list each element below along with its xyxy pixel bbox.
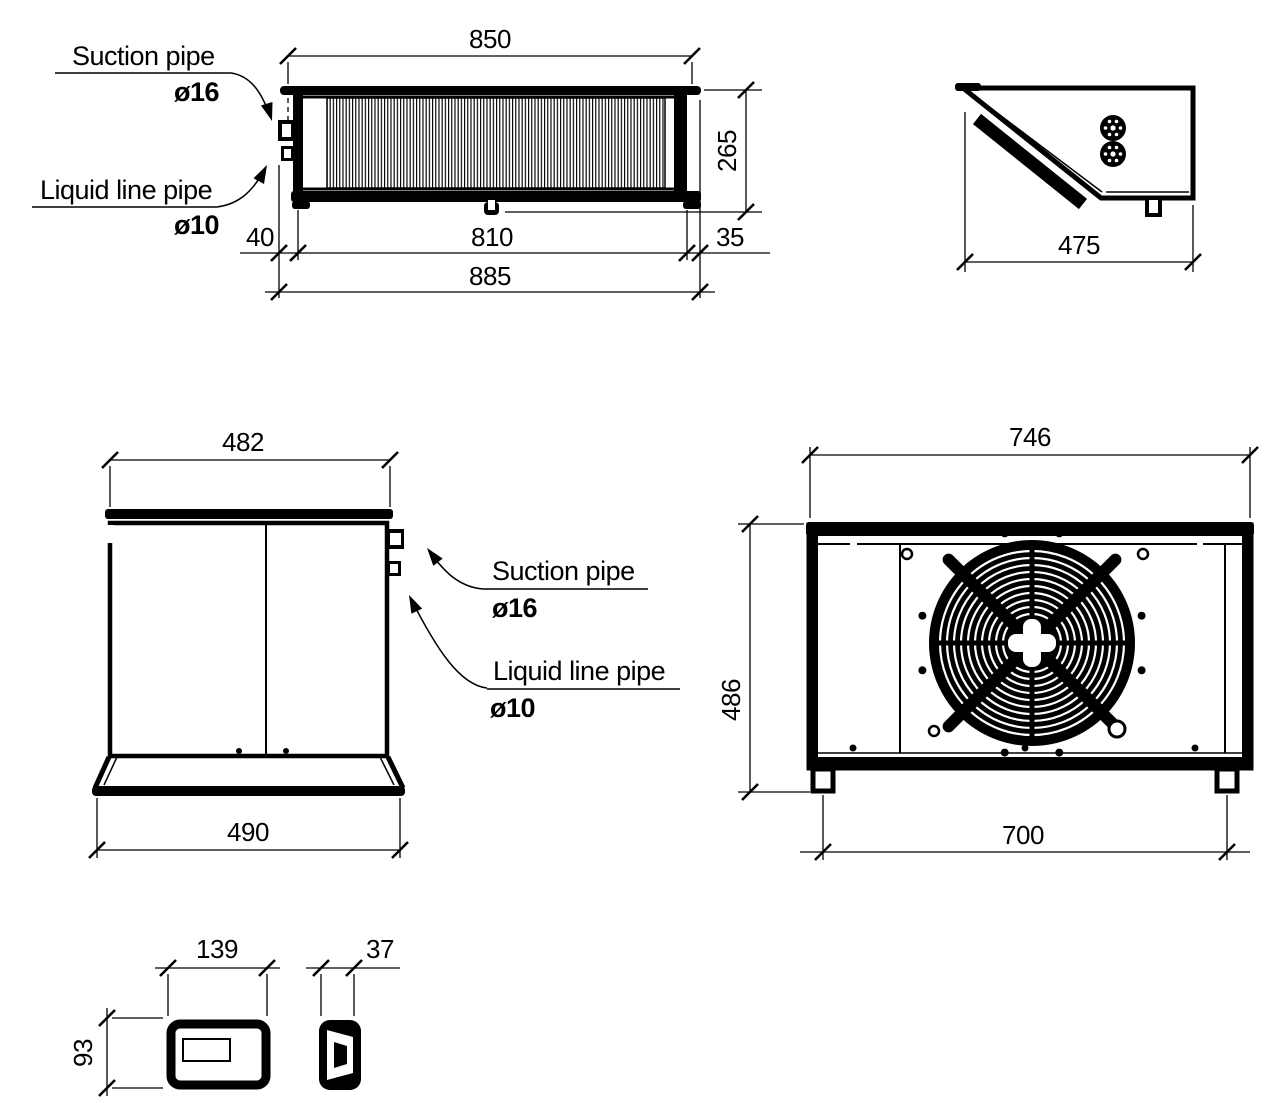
liquid-line-pipe-label: Liquid line pipe	[40, 175, 212, 205]
top-view-labels: Suction pipe ø16 Liquid line pipe ø10	[32, 41, 273, 240]
dim-490-label: 490	[227, 817, 269, 847]
technical-drawing-page: 850 265 40 810 35 885	[0, 0, 1280, 1120]
liquid-leader-line	[411, 599, 487, 688]
controller-display	[183, 1039, 230, 1061]
coil-fins	[327, 98, 665, 188]
fan-rear-view: 746	[716, 422, 1258, 860]
dim-40-label: 40	[246, 222, 274, 252]
dim-700-label: 700	[1002, 820, 1044, 850]
suction-leader-line	[231, 73, 270, 117]
condensing-unit-drawing: 850 265 40 810 35 885	[0, 0, 1280, 1120]
dim-746: 746	[802, 422, 1258, 518]
top-rail	[806, 522, 1254, 536]
dim-810-label: 810	[471, 222, 513, 252]
liquid-diameter-label: ø10	[174, 210, 219, 240]
foot-right	[1217, 769, 1237, 791]
dim-139: 139	[155, 934, 280, 1016]
bottom-rail	[291, 191, 701, 202]
controller-views: 139 37 93	[68, 934, 400, 1096]
dim-490: 490	[89, 798, 408, 858]
top-lip	[280, 86, 701, 95]
dim-486: 486	[716, 516, 810, 800]
dim-885: 885	[265, 261, 715, 300]
suction-pipe-label: Suction pipe	[492, 556, 635, 586]
liquid-diameter-label: ø10	[490, 693, 535, 723]
suction-diameter-label: ø16	[174, 77, 220, 107]
liquid-arrowhead-icon	[254, 165, 268, 184]
dim-475-label: 475	[1058, 230, 1100, 260]
dim-93: 93	[68, 1008, 163, 1096]
dim-482-label: 482	[222, 427, 264, 457]
liquid-arrowhead-icon	[409, 595, 422, 614]
dim-850-label: 850	[469, 24, 511, 54]
left-side-view: 482 490	[89, 427, 680, 858]
dim-93-label: 93	[68, 1039, 98, 1067]
dim-35-label: 35	[716, 222, 744, 252]
suction-arrowhead-icon	[261, 102, 273, 121]
suction-pipe-label: Suction pipe	[72, 41, 215, 71]
side-profile-view: 475	[955, 83, 1201, 272]
dim-885-label: 885	[469, 261, 511, 291]
top-rail	[105, 509, 393, 519]
foot-left	[813, 769, 833, 791]
fan-guard	[929, 540, 1135, 746]
dim-37: 37	[306, 934, 400, 1016]
dim-486-label: 486	[716, 679, 746, 721]
top-front-view: 850 265 40 810 35 885	[32, 24, 770, 300]
drain-tab	[1147, 198, 1160, 215]
liquid-leader-line	[217, 168, 265, 207]
unit-body	[110, 523, 387, 756]
dim-482: 482	[102, 427, 398, 507]
side-view-labels: Suction pipe ø16 Liquid line pipe ø10	[409, 548, 680, 723]
dim-746-label: 746	[1009, 422, 1051, 452]
suction-arrowhead-icon	[427, 548, 443, 566]
dim-700: 700	[800, 795, 1250, 860]
dim-265-label: 265	[712, 130, 742, 172]
suction-diameter-label: ø16	[492, 593, 538, 623]
dim-37-label: 37	[366, 934, 394, 964]
dim-139-label: 139	[196, 934, 238, 964]
controller-side	[319, 1020, 361, 1090]
liquid-line-pipe-label: Liquid line pipe	[493, 656, 665, 686]
base-skirt	[92, 757, 405, 796]
bottom-rail	[808, 757, 1252, 769]
